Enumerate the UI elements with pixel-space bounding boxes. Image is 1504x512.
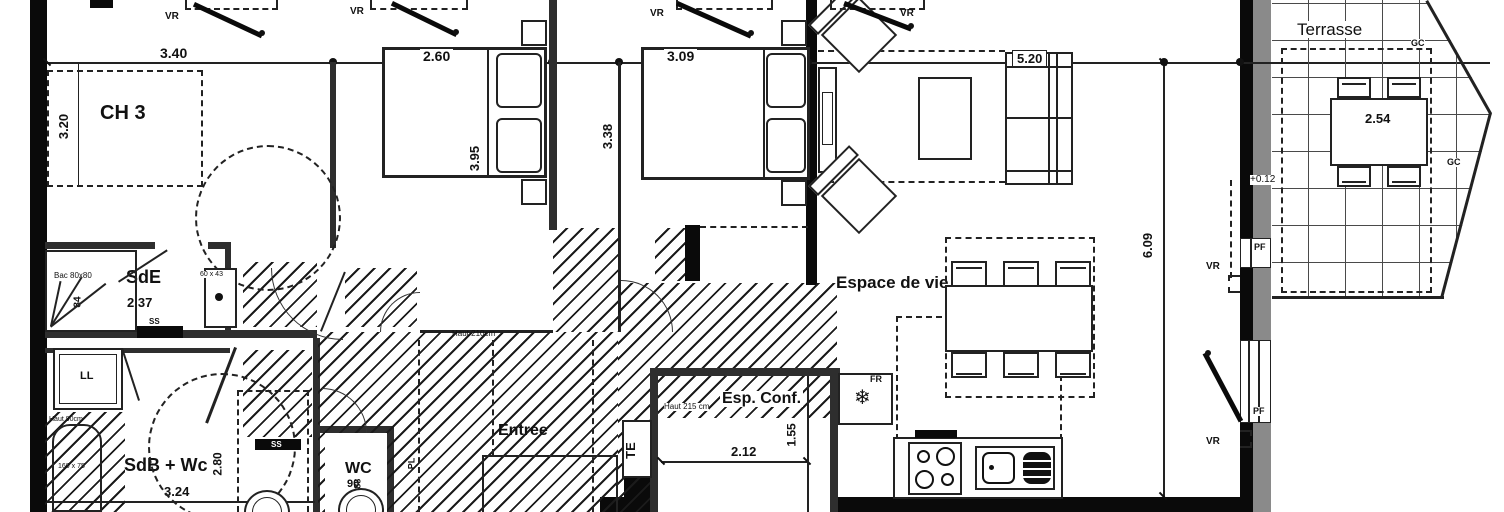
burner — [915, 470, 934, 489]
terrace-chair — [1387, 166, 1421, 187]
dim-260: 2.60 — [420, 49, 453, 63]
terrace-chair — [1337, 166, 1371, 187]
label-vr: VR — [650, 9, 664, 19]
dim-node — [1236, 58, 1244, 66]
wall-right-mid — [1240, 268, 1253, 340]
label-vr: VR — [1206, 437, 1220, 447]
label-te: TE — [624, 442, 637, 459]
burner — [936, 447, 955, 466]
dim-520: 5.20 — [1012, 50, 1047, 67]
dining-chair — [1055, 352, 1091, 378]
sofa-line — [1048, 54, 1050, 183]
dimension-line-609 — [1163, 62, 1165, 497]
note-haut210: Haut 210cm — [452, 330, 495, 338]
ll-door-leaf — [121, 348, 140, 401]
shutter-pivot — [1205, 350, 1211, 356]
nightstand — [781, 180, 807, 206]
nightstand — [781, 20, 807, 46]
wall-stub-corridor — [685, 225, 700, 281]
label-vr: VR — [1206, 262, 1220, 272]
burner — [941, 473, 954, 486]
label-ss-2: SS — [271, 441, 282, 449]
living-passage-dashed — [700, 226, 808, 228]
wall-right-upper — [1240, 0, 1253, 238]
label-basin-size: 60 x 43 — [200, 271, 223, 278]
label-tub-haut: Haut 90cm — [49, 416, 83, 423]
dim-338: 3.38 — [601, 124, 614, 149]
terrace-edge-bottom — [1272, 296, 1444, 299]
dining-chair — [1003, 352, 1039, 378]
entree-dashed-line — [418, 340, 420, 512]
label-bac80: Bac 80x80 — [54, 272, 92, 280]
sink-unit — [975, 446, 1055, 490]
sink-drain — [989, 465, 994, 470]
basin-drain — [215, 293, 223, 301]
terrace-chair — [1337, 77, 1371, 98]
dim-309: 3.09 — [664, 49, 697, 63]
dim-line-212 — [661, 461, 807, 463]
label-gc: GC — [1411, 39, 1425, 48]
label-gc: GC — [1447, 158, 1461, 167]
nightstand — [521, 20, 547, 46]
drainer-stripe — [1023, 476, 1051, 478]
vr-box — [370, 0, 468, 10]
wall-ch2-right — [549, 0, 557, 230]
label-fr: FR — [870, 375, 882, 384]
bed-ch1-line — [763, 49, 765, 178]
pillow — [766, 53, 806, 108]
window-frame-line — [1248, 340, 1250, 423]
dining-table — [945, 285, 1093, 352]
towel-radiator — [137, 326, 183, 338]
wall-stub-top — [90, 0, 113, 8]
label-ss: SS — [149, 318, 160, 326]
shutter-pivot — [453, 29, 459, 35]
label-pf: PF — [1254, 243, 1266, 252]
dim-212: 2.12 — [731, 445, 756, 458]
wall-right-mid-cladding — [1253, 268, 1271, 340]
pillow — [496, 118, 542, 173]
label-vr: VR — [165, 12, 179, 22]
wall-espconf-top — [650, 368, 840, 376]
coffee-table — [918, 77, 972, 160]
doormat — [482, 455, 618, 512]
dining-chair — [951, 261, 987, 287]
sofa-line — [1007, 170, 1071, 172]
room-label-entree: Entrée — [498, 423, 548, 439]
label-vr: VR — [350, 7, 364, 17]
sink-basin — [982, 452, 1015, 484]
room-label-wc: WC — [345, 461, 372, 477]
wall-espconf-right — [830, 376, 838, 512]
wall-right-lower-cladding — [1253, 423, 1271, 512]
label-level: +0.12 — [1250, 175, 1275, 185]
pillow — [496, 53, 542, 108]
sofa-line — [1056, 54, 1058, 183]
dim-155: 1.55 — [786, 423, 798, 446]
nightstand — [521, 179, 547, 205]
label-ll: LL — [80, 371, 93, 382]
wall-right-upper-cladding — [1253, 0, 1271, 238]
dim-line-155 — [807, 376, 809, 512]
drainer-stripe — [1023, 468, 1051, 470]
room-label-ch3: CH 3 — [100, 103, 146, 123]
note-haut215: Haut 215 cm — [664, 403, 709, 411]
dim-340: 3.40 — [160, 46, 187, 60]
burner — [917, 450, 930, 463]
pillow — [766, 118, 806, 173]
label-pf: PF — [1253, 407, 1265, 416]
vr-bracket — [1240, 430, 1252, 448]
espconf-floor — [658, 418, 830, 512]
dim-254: 2.54 — [1363, 112, 1392, 125]
room-label-espace-de-vie: Espace de vie — [836, 274, 948, 291]
dining-chair — [1003, 261, 1039, 287]
room-label-espconf: Esp. Conf. — [720, 391, 803, 407]
kitchen-hood-bar — [915, 430, 957, 438]
stove — [908, 442, 962, 495]
bed-ch2-line — [487, 49, 489, 176]
dining-chair — [951, 352, 987, 378]
window-frame-line — [1250, 238, 1252, 268]
label-tub-size: 160 x 75 — [58, 463, 85, 470]
armchair — [821, 158, 897, 234]
entree-dashed-line — [492, 340, 494, 455]
room-label-terrasse: Terrasse — [1294, 21, 1365, 38]
dim-320: 3.20 — [57, 114, 70, 139]
wall-sde-top-a — [45, 242, 155, 249]
terrace-table — [1330, 98, 1428, 166]
floor-plan: CH 3 3.20 3.40 CH 2 2.60 3.95 CH 1 3.09 … — [0, 0, 1504, 512]
hatch-corridor-stub — [655, 228, 685, 281]
sofa-line — [1007, 117, 1071, 119]
label-pl: PL — [407, 458, 416, 470]
label-vr: VR — [900, 9, 914, 19]
terrace-chair — [1387, 77, 1421, 98]
dining-chair — [1055, 261, 1091, 287]
shutter-pivot — [908, 23, 914, 29]
snowflake-icon: ❄ — [854, 388, 871, 408]
shutter-pivot — [259, 30, 265, 36]
hatch-between-ch2-ch1 — [553, 228, 618, 332]
dim-609: 6.09 — [1141, 233, 1154, 258]
tv-sideboard-inner — [822, 92, 833, 145]
shutter-pivot — [748, 30, 754, 36]
drainer-stripe — [1023, 460, 1051, 462]
dim-395: 3.95 — [468, 146, 481, 171]
shutter-bar-right — [1203, 352, 1244, 422]
right-dashed-line — [1230, 180, 1232, 278]
